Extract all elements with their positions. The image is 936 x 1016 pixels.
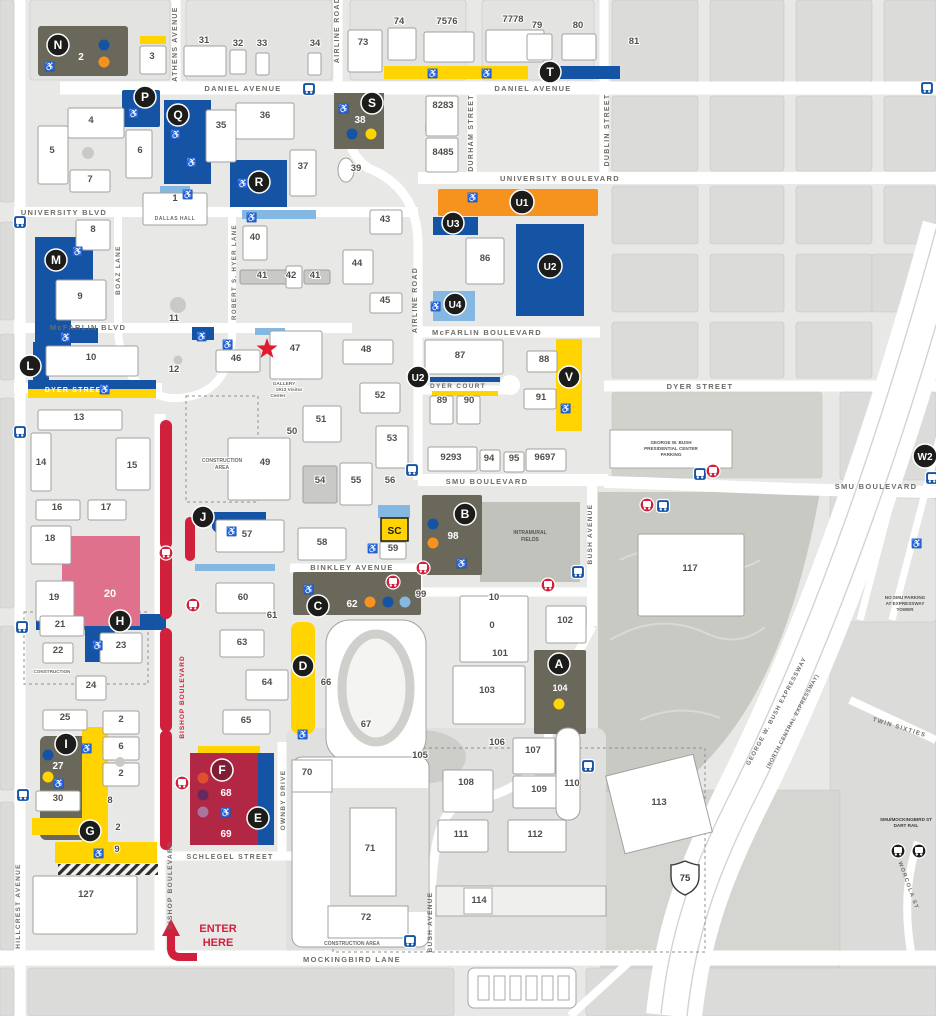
- building-b127: [33, 876, 137, 934]
- city-block: [884, 0, 936, 82]
- parking-lot-E: [258, 753, 274, 845]
- label-buildings-b108: 108: [458, 777, 474, 788]
- label-buildings-b12: 12: [169, 364, 180, 375]
- campus-map: DANIEL AVENUEDANIEL AVENUEATHENS AVENUEA…: [0, 0, 936, 1016]
- lot-badge-letter-F: F: [218, 763, 225, 777]
- label-buildings-b95: 95: [509, 453, 520, 464]
- building-b33: [256, 53, 269, 75]
- label-buildings-g9: 9: [114, 844, 119, 855]
- label-buildings-b7576: 7576: [436, 16, 457, 27]
- label-buildings-b112: 112: [527, 829, 542, 840]
- lot-badge-letter-T: T: [546, 65, 554, 79]
- label-labels-intramural1: INTRAMURAL: [513, 530, 546, 536]
- label-streets-bishop: BISHOP BOULEVARD: [179, 655, 186, 738]
- label-buildings-b40: 40: [250, 232, 261, 243]
- label-labels-area_word: AREA: [215, 465, 230, 471]
- lot-badge-letter-I: I: [64, 737, 67, 751]
- city-block: [0, 222, 14, 320]
- label-buildings-b43: 43: [380, 214, 391, 225]
- label-labels-gallery3: Center: [270, 393, 285, 399]
- label-buildings-b61: 61: [267, 610, 278, 621]
- label-buildings-b101: 101: [492, 648, 509, 659]
- label-buildings-b54: 54: [315, 475, 326, 486]
- dyer-court-circle: [500, 375, 520, 395]
- label-buildings-b47: 47: [290, 343, 301, 354]
- label-buildings-b22: 22: [53, 645, 64, 656]
- building-b74: [388, 28, 416, 60]
- label-buildings-b87: 87: [455, 350, 466, 361]
- label-buildings-b81: 81: [629, 36, 640, 47]
- city-block: [796, 96, 872, 171]
- accessible-parking-icon: ♿: [303, 584, 314, 595]
- permit-dot-blue: [383, 597, 394, 608]
- service-bay: [478, 976, 489, 1000]
- label-labels-bush3: PARKING: [661, 452, 682, 457]
- label-labels-construction: CONSTRUCTION: [33, 669, 71, 674]
- label-buildings-b80: 80: [573, 20, 584, 31]
- label-streets-airline: AIRLINE ROAD: [334, 0, 341, 63]
- label-buildings-b102: 102: [557, 615, 573, 626]
- bus-stop-icon: [572, 566, 585, 579]
- lot-badge-letter-V: V: [565, 370, 573, 384]
- label-buildings-b55: 55: [351, 475, 362, 486]
- lot-badge-letter-L: L: [26, 359, 33, 373]
- accessible-parking-icon: ♿: [53, 778, 64, 789]
- label-streets-smu_boulevard: SMU BOULEVARD: [446, 477, 529, 486]
- city-block: [0, 398, 14, 608]
- label-labels-dart1: SMU/MOCKINGBIRD ST: [880, 817, 932, 822]
- accessible-parking-icon: ♿: [99, 384, 110, 395]
- lot-badge-letter-B: B: [461, 507, 470, 521]
- label-buildings-b44: 44: [352, 258, 363, 269]
- label-buildings-b9697: 9697: [534, 452, 555, 463]
- label-labels-dallas_hall: DALLAS HALL: [155, 216, 196, 222]
- accessible-parking-icon: ♿: [367, 543, 378, 554]
- label-streets-binkley: BINKLEY AVENUE: [310, 563, 394, 572]
- label-buildings-b9293: 9293: [440, 452, 461, 463]
- lot-badge-letter-J: J: [200, 510, 207, 524]
- accessible-parking-icon: ♿: [128, 108, 139, 119]
- city-block: [612, 186, 698, 244]
- label-buildings-b41b: 41: [310, 270, 321, 281]
- label-buildings-b94: 94: [484, 453, 495, 464]
- building-b80: [562, 34, 596, 60]
- accessible-parking-icon: ♿: [560, 403, 571, 414]
- lot-badge-U4: U4: [444, 293, 466, 315]
- lot-badge-letter-U4: U4: [449, 300, 462, 311]
- service-bay: [558, 976, 569, 1000]
- lot-badge-letter-R: R: [255, 175, 264, 189]
- lot-badge-H: H: [109, 610, 131, 632]
- label-buildings-b99: 99: [416, 589, 427, 600]
- rail-station-icon: [891, 844, 905, 858]
- express-bus-icon: [386, 575, 400, 589]
- bus-stop-icon: [406, 464, 419, 477]
- permit-dot-yellow: [554, 699, 565, 710]
- label-streets-airline: AIRLINE ROAD: [412, 267, 419, 333]
- accessible-parking-icon: ♿: [297, 729, 308, 740]
- lot-badge-B: B: [454, 503, 476, 525]
- label-buildings-b113: 113: [651, 797, 666, 808]
- lot-badge-letter-A: A: [555, 657, 564, 671]
- label-buildings-b88: 88: [539, 354, 550, 365]
- city-block: [0, 968, 14, 1016]
- lawn-dot: [115, 757, 125, 767]
- accessible-parking-icon: ♿: [456, 558, 467, 569]
- label-buildings-b89: 89: [437, 395, 448, 406]
- accessible-parking-icon: ♿: [92, 640, 103, 651]
- bus-stop-icon: [14, 216, 27, 229]
- city-block: [612, 322, 698, 378]
- label-buildings-b53: 53: [387, 433, 398, 444]
- label-buildings-col6: 6: [118, 741, 123, 752]
- parking-lot-G-south: [55, 842, 157, 863]
- accessible-parking-icon: ♿: [911, 538, 922, 549]
- lot-badge-U2: U2: [538, 254, 562, 278]
- label-buildings-b36: 36: [260, 110, 271, 121]
- building-b36: [236, 103, 294, 139]
- label-buildings-b21: 21: [55, 619, 66, 630]
- city-block: [796, 0, 872, 82]
- label-streets-bush_avenue: BUSH AVENUE: [587, 504, 594, 565]
- label-buildings-b9: 9: [77, 291, 82, 302]
- label-buildings-b11: 11: [169, 313, 180, 324]
- building-b117: [638, 534, 744, 616]
- service-bay: [542, 976, 553, 1000]
- lot-badge-letter-S: S: [368, 96, 376, 110]
- label-buildings-b14: 14: [36, 457, 47, 468]
- building-b49: [228, 438, 290, 500]
- label-buildings-b25: 25: [60, 712, 71, 723]
- stadium-track: [342, 634, 410, 742]
- label-buildings-b13: 13: [74, 412, 85, 423]
- parking-lot-T-yellow: [384, 66, 528, 79]
- accessible-parking-icon: ♿: [186, 157, 197, 168]
- label-buildings-b74: 74: [394, 16, 405, 27]
- city-block: [0, 802, 14, 950]
- express-bus-icon: [640, 498, 654, 512]
- building-b18: [31, 526, 71, 564]
- lot-badge-letter-U2: U2: [544, 262, 557, 273]
- lot-badge-SC: SC: [381, 518, 408, 541]
- label-buildings-b86: 86: [480, 253, 491, 264]
- label-buildings-b56: 56: [385, 475, 396, 486]
- label-buildings-b114: 114: [471, 895, 487, 906]
- label-buildings-b127: 127: [78, 889, 94, 900]
- building-b32: [230, 50, 246, 74]
- label-streets-hillcrest: HILLCREST AVENUE: [15, 863, 22, 948]
- label-buildings-col2b: 2: [118, 768, 123, 779]
- express-bus-icon: [175, 776, 189, 790]
- label-buildings-b64: 64: [262, 677, 273, 688]
- label-buildings-b58: 58: [317, 537, 328, 548]
- lot-badge-U3: U3: [442, 212, 464, 234]
- label-labels-nopark3: TOWER: [896, 607, 914, 612]
- label-buildings-b39: 39: [351, 163, 362, 174]
- accessible-parking-icon: ♿: [338, 103, 349, 114]
- lot-badge-letter-Q: Q: [173, 108, 182, 122]
- label-buildings-b51: 51: [316, 414, 327, 425]
- label-buildings-b7778: 7778: [502, 14, 523, 25]
- parking-lot-G-arm: [32, 818, 84, 835]
- lot-badge-C: C: [307, 595, 329, 617]
- label-buildings-b30: 30: [53, 793, 64, 804]
- label-buildings-b100_0: 0: [489, 620, 494, 631]
- lawn-dot: [170, 297, 186, 313]
- label-buildings-b100_10: 10: [489, 592, 500, 603]
- label-streets-durham: DURHAM STREET: [468, 94, 475, 172]
- lot-badge-F: F: [211, 759, 233, 781]
- building-b107: [513, 738, 555, 774]
- building-b79: [527, 34, 552, 60]
- label-buildings-b106: 106: [489, 737, 505, 748]
- label-buildings-b8: 8: [90, 224, 95, 235]
- label-streets-dublin: DUBLIN STREET: [604, 94, 611, 167]
- permit-dot-orange: [428, 538, 439, 549]
- lot-badge-A: A: [548, 653, 570, 675]
- lot-badge-letter-SC: SC: [388, 526, 402, 537]
- express-bus-icon: [416, 561, 430, 575]
- bus-stop-icon: [926, 472, 936, 485]
- accessible-parking-icon: ♿: [170, 129, 181, 140]
- campus-map-canvas: DANIEL AVENUEDANIEL AVENUEATHENS AVENUEA…: [0, 0, 936, 1016]
- label-streets-mcfarlin_boulevard: McFARLIN BOULEVARD: [432, 328, 542, 337]
- label-buildings-col2a: 2: [118, 714, 123, 725]
- label-labels-gallery2: 1913 Visitor: [276, 387, 303, 393]
- label-labels-nopark1: NO SMU PARKING: [885, 595, 926, 600]
- building-110: [556, 728, 580, 820]
- lot-badge-letter-E: E: [254, 811, 262, 825]
- accessible-parking-icon: ♿: [222, 339, 233, 350]
- accessible-parking-icon: ♿: [246, 212, 257, 223]
- building-b47: [270, 331, 322, 379]
- label-lot_numbers-p20: 20: [104, 588, 116, 600]
- label-buildings-b18: 18: [45, 533, 56, 544]
- label-streets-mockingbird: MOCKINGBIRD LANE: [303, 955, 401, 964]
- label-buildings-b19: 19: [49, 592, 60, 603]
- parking-lot-T-blue: [560, 66, 620, 79]
- accessible-parking-icon: ♿: [467, 192, 478, 203]
- city-block: [0, 334, 14, 380]
- accessible-parking-icon: ♿: [430, 301, 441, 312]
- label-buildings-b57: 57: [242, 529, 253, 540]
- label-buildings-b63: 63: [237, 637, 248, 648]
- label-buildings-b4: 4: [88, 115, 94, 126]
- lot-badge-letter-H: H: [116, 614, 125, 628]
- label-labels-bush2: PRESIDENTIAL CENTER: [644, 446, 698, 451]
- city-block: [0, 0, 14, 202]
- label-buildings-b32: 32: [233, 38, 244, 49]
- parking-strip-U2: [430, 377, 500, 382]
- permit-dot-yellow: [366, 129, 377, 140]
- parking-lot-D: [291, 622, 315, 734]
- accessible-parking-icon: ♿: [220, 807, 231, 818]
- lot-badge-letter-G: G: [85, 824, 94, 838]
- label-buildings-b67: 67: [361, 719, 372, 730]
- yellow-curb-strip: [140, 36, 166, 44]
- bus-stop-icon: [14, 426, 27, 439]
- lot-badge-Q: Q: [167, 104, 189, 126]
- lawn-dot: [82, 147, 94, 159]
- label-buildings-b34: 34: [310, 38, 321, 49]
- label-streets-boaz: BOAZ LANE: [115, 245, 122, 295]
- service-bay: [494, 976, 505, 1000]
- city-block: [710, 0, 784, 82]
- label-lot_numbers-b98: 98: [447, 531, 459, 542]
- label-buildings-b10: 10: [86, 352, 97, 363]
- label-streets-hyer: ROBERT S. HYER LANE: [231, 224, 238, 320]
- accessible-strip: [378, 505, 410, 518]
- accessible-parking-icon: ♿: [60, 332, 71, 343]
- label-labels-bush1: GEORGE W. BUSH: [650, 440, 692, 445]
- accessible-parking-icon: ♿: [481, 68, 492, 79]
- label-buildings-b70: 70: [302, 767, 313, 778]
- lot-badge-D: D: [292, 655, 314, 677]
- yellow-curb-strip: [198, 746, 260, 753]
- label-streets-daniel: DANIEL AVENUE: [494, 84, 571, 93]
- lot-badge-G: G: [79, 820, 101, 842]
- label-labels-construction_area: CONSTRUCTION AREA: [324, 941, 380, 947]
- label-lot_numbers-f69: 69: [220, 829, 232, 840]
- permit-dot-orange: [99, 57, 110, 68]
- city-block: [0, 626, 14, 790]
- city-block: [796, 186, 872, 244]
- label-buildings-b41a: 41: [257, 270, 268, 281]
- label-labels-construction_word: CONSTRUCTION: [202, 458, 243, 464]
- lot-badge-M: M: [45, 249, 67, 271]
- label-streets-daniel: DANIEL AVENUE: [204, 84, 281, 93]
- label-labels-intramural2: FIELDS: [521, 537, 539, 543]
- label-buildings-b79: 79: [532, 20, 543, 31]
- accessible-parking-icon: ♿: [237, 178, 248, 189]
- building-114-band: [436, 886, 606, 916]
- label-streets-university_boulevard: UNIVERSITY BOULEVARD: [500, 174, 620, 183]
- label-streets-schlegel: SCHLEGEL STREET: [186, 854, 273, 861]
- label-buildings-g8: 8: [107, 795, 112, 806]
- label-streets-mcfarlin_blvd: McFARLIN BLVD: [50, 323, 126, 332]
- permit-dot-dot_lilac: [198, 807, 209, 818]
- label-buildings-b90: 90: [464, 395, 475, 406]
- accessible-strip: [195, 564, 275, 571]
- label-labels-hwy: 75: [680, 873, 691, 884]
- city-block: [710, 254, 784, 312]
- building-b35: [206, 110, 236, 162]
- label-buildings-b6: 6: [137, 145, 142, 156]
- lot-badge-N: N: [47, 34, 69, 56]
- label-buildings-b49: 49: [260, 457, 271, 468]
- label-buildings-b111: 111: [454, 829, 470, 840]
- express-bus-icon: [186, 598, 200, 612]
- label-buildings-b37: 37: [298, 161, 309, 172]
- accessible-parking-icon: ♿: [196, 331, 207, 342]
- lot-badge-letter-C: C: [314, 599, 323, 613]
- label-buildings-b50: 50: [287, 426, 298, 437]
- permit-dot-dot_red: [198, 773, 209, 784]
- label-streets-bush_avenue: BUSH AVENUE: [427, 892, 434, 953]
- label-buildings-b91: 91: [536, 392, 547, 403]
- bus-stop-icon: [17, 789, 30, 802]
- label-buildings-b24: 24: [86, 680, 97, 691]
- permit-dot-yellow: [43, 772, 54, 783]
- bus-stop-icon: [16, 621, 29, 634]
- lot-badge-letter-M: M: [51, 253, 61, 267]
- accessible-parking-icon: ♿: [93, 848, 104, 859]
- label-buildings-b8485: 8485: [432, 147, 454, 158]
- label-buildings-b42: 42: [286, 270, 297, 281]
- label-buildings-b35: 35: [216, 120, 227, 131]
- building-b34: [308, 53, 321, 75]
- label-buildings-b3: 3: [149, 51, 154, 62]
- lot-badge-L: L: [19, 355, 41, 377]
- label-buildings-b110: 110: [564, 778, 579, 789]
- label-buildings-b16: 16: [52, 502, 63, 513]
- building-b7576: [424, 32, 474, 62]
- lot-badge-letter-U1: U1: [516, 198, 529, 209]
- label-streets-athens: ATHENS AVENUE: [172, 6, 179, 82]
- label-buildings-b117: 117: [682, 563, 697, 574]
- label-buildings-b59: 59: [388, 543, 399, 554]
- label-buildings-b107: 107: [525, 745, 541, 756]
- label-buildings-b46: 46: [231, 353, 242, 364]
- label-buildings-b15: 15: [127, 460, 138, 471]
- label-labels-enter2: HERE: [203, 937, 234, 949]
- permit-dot-blue: [428, 519, 439, 530]
- accessible-parking-icon: ♿: [226, 526, 237, 537]
- label-buildings-b17: 17: [101, 502, 112, 513]
- lot-badge-U2: U2: [407, 366, 429, 388]
- lot-badge-R: R: [248, 171, 270, 193]
- express-bus-icon: [159, 546, 173, 560]
- bus-stop-icon: [404, 935, 417, 948]
- lot-badge-W2: W2: [913, 444, 936, 468]
- city-block: [710, 96, 784, 171]
- service-bay: [510, 976, 521, 1000]
- city-block: [28, 968, 454, 1016]
- lot-badge-letter-N: N: [54, 38, 63, 52]
- label-buildings-b31: 31: [199, 35, 210, 46]
- lot-badge-I: I: [55, 733, 77, 755]
- lot-badge-letter-D: D: [299, 659, 308, 673]
- city-block: [612, 0, 698, 82]
- label-buildings-b73: 73: [358, 37, 369, 48]
- label-lot_numbers-f68: 68: [220, 788, 232, 799]
- building-b31: [184, 46, 226, 76]
- label-labels-enter1: ENTER: [199, 923, 236, 935]
- label-lot_numbers-a104: 104: [552, 683, 567, 693]
- permit-dot-light_blue: [400, 597, 411, 608]
- label-labels-dart2: DART RAIL: [894, 823, 919, 828]
- accessible-parking-icon: ♿: [72, 246, 83, 257]
- label-streets-dyer_street: DYER STREET: [667, 382, 734, 391]
- label-buildings-b33: 33: [257, 38, 268, 49]
- permit-dot-blue: [43, 750, 54, 761]
- label-streets-smu_boulevard: SMU BOULEVARD: [835, 482, 918, 491]
- label-lot_numbers-c62: 62: [346, 599, 358, 610]
- label-buildings-b8283: 8283: [432, 100, 453, 111]
- bus-stop-icon: [657, 500, 670, 513]
- city-block: [710, 186, 784, 244]
- lot-badge-letter-U3: U3: [447, 219, 460, 230]
- accessible-parking-icon: ♿: [427, 68, 438, 79]
- label-buildings-b48: 48: [361, 344, 372, 355]
- bus-stop-icon: [303, 83, 316, 96]
- label-buildings-b65: 65: [241, 715, 252, 726]
- express-bus-icon: [541, 578, 555, 592]
- bus-stop-icon: [921, 82, 934, 95]
- label-lot_numbers-s38: 38: [354, 115, 366, 126]
- label-buildings-b1: 1: [172, 193, 178, 204]
- lot-badge-letter-U2: U2: [412, 373, 425, 384]
